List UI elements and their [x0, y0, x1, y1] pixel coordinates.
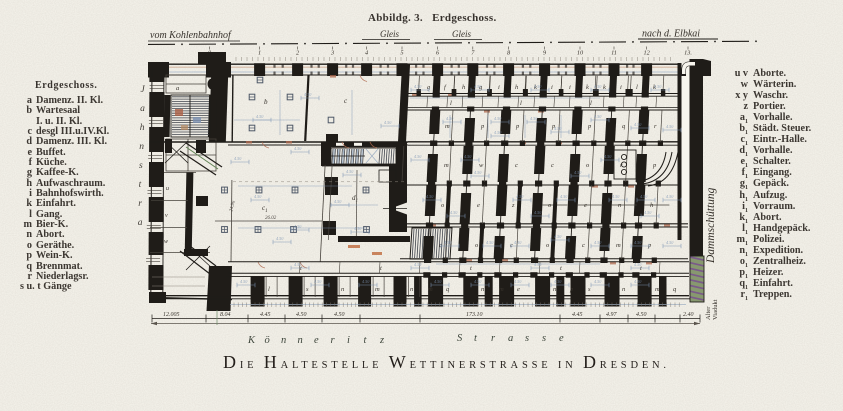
svg-text:4.50: 4.50: [294, 262, 302, 267]
svg-text:c: c: [510, 242, 513, 249]
svg-text:Viadukt: Viadukt: [712, 299, 719, 320]
svg-text:e: e: [517, 286, 520, 293]
svg-text:4.97: 4.97: [606, 311, 618, 318]
svg-text:4.50: 4.50: [474, 84, 482, 89]
svg-text:z: z: [379, 335, 384, 346]
svg-text:a: a: [138, 218, 143, 228]
svg-text:2.40: 2.40: [683, 311, 694, 318]
svg-text:t: t: [560, 265, 562, 272]
svg-text:e: e: [477, 202, 480, 209]
svg-text:4.50: 4.50: [304, 92, 312, 97]
svg-text:4.50: 4.50: [594, 84, 602, 89]
svg-text:4.50: 4.50: [334, 199, 342, 204]
svg-text:t: t: [139, 180, 142, 190]
svg-text:w: w: [479, 162, 484, 169]
svg-text:12.005: 12.005: [163, 312, 180, 318]
svg-text:c: c: [515, 162, 518, 169]
svg-text:b: b: [264, 98, 268, 106]
svg-text:5: 5: [400, 50, 403, 57]
svg-text:h: h: [515, 84, 518, 91]
svg-text:n: n: [481, 286, 484, 293]
svg-text:S: S: [457, 333, 463, 344]
svg-text:e: e: [559, 333, 564, 344]
svg-text:4.50: 4.50: [444, 240, 452, 245]
svg-text:Dammschüttung: Dammschüttung: [705, 187, 717, 264]
svg-text:4.50: 4.50: [574, 170, 582, 175]
svg-text:n: n: [553, 286, 556, 293]
svg-text:z: z: [511, 202, 515, 209]
svg-text:4.50: 4.50: [464, 154, 472, 159]
svg-text:l: l: [450, 100, 452, 107]
svg-text:4.50: 4.50: [234, 156, 242, 161]
svg-text:e: e: [584, 202, 587, 209]
svg-text:4.50: 4.50: [450, 210, 458, 215]
svg-text:4.50: 4.50: [354, 226, 362, 231]
svg-text:4.50: 4.50: [434, 279, 442, 284]
svg-text:4.50: 4.50: [494, 130, 502, 135]
svg-text:4.50: 4.50: [240, 279, 248, 284]
svg-text:a: a: [140, 104, 145, 114]
svg-text:a: a: [176, 85, 179, 92]
svg-text:l: l: [636, 84, 638, 91]
svg-text:11: 11: [611, 50, 617, 57]
svg-text:m: m: [499, 286, 504, 293]
svg-text:4.50: 4.50: [362, 279, 370, 284]
svg-text:n: n: [622, 286, 625, 293]
svg-text:4.50: 4.50: [634, 279, 642, 284]
svg-text:173.10: 173.10: [466, 312, 483, 318]
svg-text:t: t: [470, 265, 472, 272]
svg-text:4.50: 4.50: [474, 279, 482, 284]
svg-text:m: m: [445, 123, 450, 130]
svg-text:4.50: 4.50: [334, 311, 345, 318]
svg-text:e: e: [314, 335, 319, 346]
svg-text:s: s: [525, 333, 529, 344]
svg-text:4.50: 4.50: [644, 210, 652, 215]
svg-text:c: c: [439, 242, 442, 249]
svg-text:4.50: 4.50: [554, 279, 562, 284]
svg-text:l: l: [590, 100, 592, 107]
svg-text:4.50: 4.50: [514, 240, 522, 245]
svg-text:4.50: 4.50: [314, 279, 322, 284]
svg-text:3: 3: [330, 50, 334, 57]
svg-text:12: 12: [643, 50, 650, 57]
svg-text:c: c: [551, 162, 554, 169]
svg-text:4.50: 4.50: [256, 114, 264, 119]
svg-text:n: n: [410, 286, 413, 293]
svg-text:4.50: 4.50: [534, 84, 542, 89]
svg-text:k: k: [586, 84, 589, 91]
svg-text:8.04: 8.04: [220, 311, 231, 318]
svg-text:4.50: 4.50: [594, 279, 602, 284]
svg-text:i: i: [551, 84, 553, 91]
svg-text:i: i: [347, 335, 350, 346]
svg-text:n: n: [618, 202, 621, 209]
svg-text:vom Kohlenbahnhof: vom Kohlenbahnhof: [150, 30, 232, 41]
svg-text:t: t: [380, 265, 382, 272]
svg-text:h: h: [462, 84, 465, 91]
svg-text:m: m: [375, 286, 380, 293]
svg-text:4.50: 4.50: [654, 84, 662, 89]
svg-text:4.50: 4.50: [634, 262, 642, 267]
svg-text:4.45: 4.45: [572, 311, 583, 318]
svg-text:4.50: 4.50: [594, 240, 602, 245]
svg-text:u: u: [166, 186, 169, 192]
svg-text:l: l: [520, 100, 522, 107]
svg-text:i: i: [498, 84, 500, 91]
svg-text:nach d. Elbkai: nach d. Elbkai: [642, 29, 700, 40]
svg-text:4.50: 4.50: [634, 240, 642, 245]
svg-text:4.50: 4.50: [534, 210, 542, 215]
svg-text:r: r: [138, 199, 142, 209]
svg-text:h: h: [140, 123, 145, 133]
svg-text:4.50: 4.50: [640, 194, 648, 199]
svg-text:10: 10: [577, 50, 584, 57]
svg-text:l: l: [268, 286, 270, 293]
svg-text:4.50: 4.50: [634, 122, 642, 127]
svg-text:a: a: [508, 333, 513, 344]
svg-text:v: v: [165, 213, 168, 219]
svg-text:c: c: [582, 242, 585, 249]
svg-text:4.50: 4.50: [530, 116, 538, 121]
svg-text:4.50: 4.50: [296, 311, 307, 318]
svg-text:4.50: 4.50: [294, 224, 302, 229]
svg-text:i: i: [569, 84, 571, 91]
svg-text:w: w: [164, 239, 168, 245]
svg-text:4.50: 4.50: [666, 194, 674, 199]
svg-text:4.50: 4.50: [604, 154, 612, 159]
svg-text:4.50: 4.50: [254, 194, 262, 199]
svg-text:4.50: 4.50: [276, 236, 284, 241]
svg-text:4.50: 4.50: [554, 234, 562, 239]
svg-text:4.50: 4.50: [426, 194, 434, 199]
svg-text:1: 1: [258, 50, 261, 57]
svg-text:4.50: 4.50: [636, 311, 647, 318]
svg-text:ö: ö: [265, 335, 270, 346]
svg-text:m: m: [444, 162, 449, 169]
svg-text:m: m: [428, 286, 433, 293]
svg-text:4.50: 4.50: [414, 84, 422, 89]
svg-text:Gleis: Gleis: [380, 29, 399, 39]
svg-text:n: n: [139, 142, 144, 152]
svg-text:4.50: 4.50: [666, 240, 674, 245]
svg-text:4.50: 4.50: [516, 194, 524, 199]
svg-text:4.50: 4.50: [384, 120, 392, 125]
svg-text:4.50: 4.50: [414, 262, 422, 267]
svg-text:Alter: Alter: [705, 306, 712, 320]
svg-text:4.50: 4.50: [494, 116, 502, 121]
svg-text:n: n: [341, 286, 344, 293]
svg-text:4: 4: [365, 50, 368, 57]
svg-text:s: s: [542, 333, 546, 344]
svg-text:Gleis: Gleis: [452, 29, 471, 39]
svg-text:4.50: 4.50: [612, 194, 620, 199]
svg-text:4.50: 4.50: [486, 240, 494, 245]
svg-text:4.50: 4.50: [666, 124, 674, 129]
svg-text:m: m: [655, 286, 660, 293]
svg-text:4.45: 4.45: [260, 311, 271, 318]
svg-text:K: K: [247, 335, 256, 346]
svg-text:4.50: 4.50: [346, 169, 354, 174]
svg-text:n: n: [281, 335, 286, 346]
svg-text:13.: 13.: [684, 50, 692, 57]
svg-text:m: m: [616, 242, 621, 249]
svg-text:4.50: 4.50: [514, 279, 522, 284]
svg-text:s: s: [139, 161, 143, 171]
svg-text:4.50: 4.50: [474, 170, 482, 175]
svg-text:4.50: 4.50: [414, 154, 422, 159]
svg-text:h: h: [650, 202, 653, 209]
svg-text:4.50: 4.50: [294, 146, 302, 151]
svg-text:4.50: 4.50: [594, 114, 602, 119]
svg-text:26.02: 26.02: [265, 216, 277, 221]
svg-text:i: i: [620, 84, 622, 91]
svg-text:n: n: [298, 335, 303, 346]
svg-text:4.50: 4.50: [560, 194, 568, 199]
svg-text:4.50: 4.50: [534, 262, 542, 267]
